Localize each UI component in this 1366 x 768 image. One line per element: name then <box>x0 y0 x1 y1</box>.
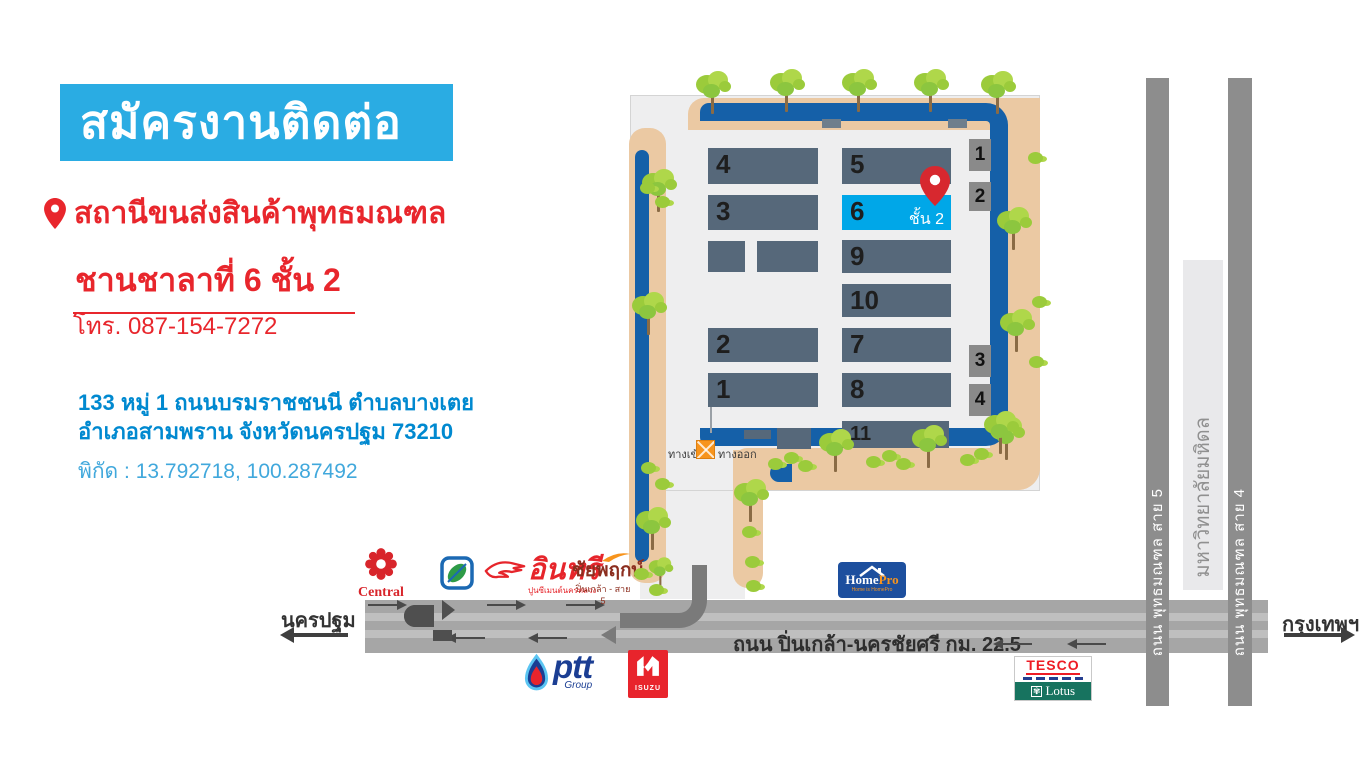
building-7: 7 <box>842 328 951 362</box>
bush-icon <box>745 556 760 568</box>
u-turn-tail <box>433 630 452 641</box>
bush-icon <box>1032 296 1047 308</box>
central-wordmark: Central <box>356 585 406 601</box>
building-6-number: 6 <box>850 196 864 226</box>
dock-4: 4 <box>969 384 991 416</box>
gate-icon <box>696 440 715 459</box>
flame-icon <box>524 652 549 696</box>
ptt-wordmark: ptt Group <box>553 652 592 691</box>
homepro-wordmark: HomePro <box>838 573 906 586</box>
traffic-arrow-icon <box>1002 643 1032 645</box>
dock-2: 2 <box>969 182 991 211</box>
bush-icon <box>746 580 761 592</box>
building-small-b <box>757 241 818 272</box>
lotus-icon: ✾ <box>1031 686 1043 697</box>
lotus-band: ✾ Lotus <box>1015 682 1091 700</box>
central-logo: Central <box>356 546 406 601</box>
tesco-lotus-logo: TESCO ✾ Lotus <box>1014 656 1092 701</box>
bush-icon <box>649 584 664 596</box>
main-road: ถนน ปิ่นเกล้า-นครชัยศรี กม. 22.5 <box>365 600 1268 653</box>
exit-label: ทางออก <box>718 445 757 463</box>
building-10: 10 <box>842 284 951 317</box>
chaiyapruek-logo: ชัยพฤกษ์ ปิ่นเกล้า - สาย 5 <box>572 550 634 606</box>
lane-stripe <box>365 613 1268 621</box>
building-1: 1 <box>708 373 818 407</box>
address-line-1: 133 หมู่ 1 ถนนบรมราชชนนี ตำบลบางเตย <box>78 388 474 417</box>
u-turn-arrowhead <box>442 600 455 620</box>
bush-icon <box>640 182 655 194</box>
building-8: 8 <box>842 373 951 407</box>
tesco-wordmark: TESCO <box>1015 657 1091 675</box>
building-4: 4 <box>708 148 818 184</box>
title-banner: สมัครงานติดต่อ <box>60 84 453 161</box>
building-3: 3 <box>708 195 818 230</box>
bush-icon <box>768 458 783 470</box>
top-bar-a <box>822 119 841 128</box>
bush-icon <box>798 460 813 472</box>
bush-icon <box>655 196 670 208</box>
bush-icon <box>882 450 897 462</box>
bush-icon <box>1029 356 1044 368</box>
university-label: มหาวิทยาลัยมหิดล <box>1187 417 1219 578</box>
east-arrow-icon <box>1284 633 1342 637</box>
central-flower-icon <box>365 546 397 582</box>
top-bar-b <box>948 119 967 128</box>
building-2: 2 <box>708 328 818 362</box>
address-line-2: อำเภอสามพราน จังหวัดนครปฐม 73210 <box>78 417 474 446</box>
bush-icon <box>641 462 656 474</box>
ptt-logo: ptt Group <box>524 652 592 696</box>
destination-pin-icon <box>920 166 950 206</box>
road-sai-5: ถนน พุทธมณฑล สาย 5 <box>1146 78 1169 706</box>
isuzu-logo: ISUZU <box>628 650 668 698</box>
leaf-icon <box>440 556 474 590</box>
lotus-wordmark: Lotus <box>1045 683 1075 699</box>
isuzu-emblem-icon <box>636 655 660 677</box>
bush-icon <box>634 568 649 580</box>
dock-3: 3 <box>969 345 991 377</box>
homepro-logo: HomePro Home is HomePro <box>838 562 906 598</box>
traffic-arrow-icon <box>1076 643 1106 645</box>
building-9: 9 <box>842 240 951 273</box>
bush-icon <box>1028 152 1043 164</box>
bush-icon <box>896 458 911 470</box>
fence-line <box>710 407 712 433</box>
road-sai-5-label: ถนน พุทธมณฑล สาย 5 <box>1146 488 1170 656</box>
location-row: สถานีขนส่งสินค้าพุทธมณฑล <box>44 192 604 234</box>
exit-road-arrowhead <box>601 626 616 644</box>
dock-1: 1 <box>969 139 991 171</box>
bush-icon <box>974 448 989 460</box>
job-location-map: สมัครงานติดต่อ สถานีขนส่งสินค้าพุทธมณฑล … <box>0 0 1366 768</box>
road-sai-4: ถนน พุทธมณฑล สาย 4 <box>1228 78 1252 706</box>
road-sai-4-label: ถนน พุทธมณฑล สาย 4 <box>1228 488 1252 656</box>
dash-divider <box>1023 677 1083 680</box>
bush-icon <box>784 452 799 464</box>
traffic-arrow-icon <box>455 637 485 639</box>
eagle-icon <box>482 556 528 586</box>
gps-coordinates: พิกัด : 13.792718, 100.287492 <box>78 455 358 488</box>
west-arrow-icon <box>293 633 348 637</box>
bottom-bar <box>744 430 771 439</box>
bottom-block <box>777 428 811 449</box>
building-small-a <box>708 241 745 272</box>
road-gap <box>700 464 736 482</box>
bush-icon <box>960 454 975 466</box>
leaf-logo <box>440 556 474 595</box>
isuzu-wordmark: ISUZU <box>628 685 668 692</box>
traffic-arrow-icon <box>368 604 398 606</box>
bush-icon <box>655 478 670 490</box>
homepro-slogan: Home is HomePro <box>838 587 906 593</box>
floor-label: ชั้น 2 <box>909 211 944 229</box>
bush-icon <box>742 526 757 538</box>
location-pin-icon <box>44 198 66 229</box>
mahidol-university-block: มหาวิทยาลัยมหิดล <box>1183 260 1223 590</box>
station-name: สถานีขนส่งสินค้าพุทธมณฑล <box>74 190 446 237</box>
main-road-label: ถนน ปิ่นเกล้า-นครชัยศรี กม. 22.5 <box>733 628 1021 660</box>
phone-number: โทร. 087-154-7272 <box>73 306 277 345</box>
traffic-arrow-icon <box>537 637 567 639</box>
bush-icon <box>866 456 881 468</box>
chaiyapruek-subtitle: ปิ่นเกล้า - สาย 5 <box>572 582 634 606</box>
u-turn-icon <box>404 605 434 627</box>
internal-road-left <box>635 150 649 562</box>
address: 133 หมู่ 1 ถนนบรมราชชนนี ตำบลบางเตย อำเภ… <box>78 388 474 446</box>
traffic-arrow-icon <box>487 604 517 606</box>
page-title: สมัครงานติดต่อ <box>80 96 402 148</box>
